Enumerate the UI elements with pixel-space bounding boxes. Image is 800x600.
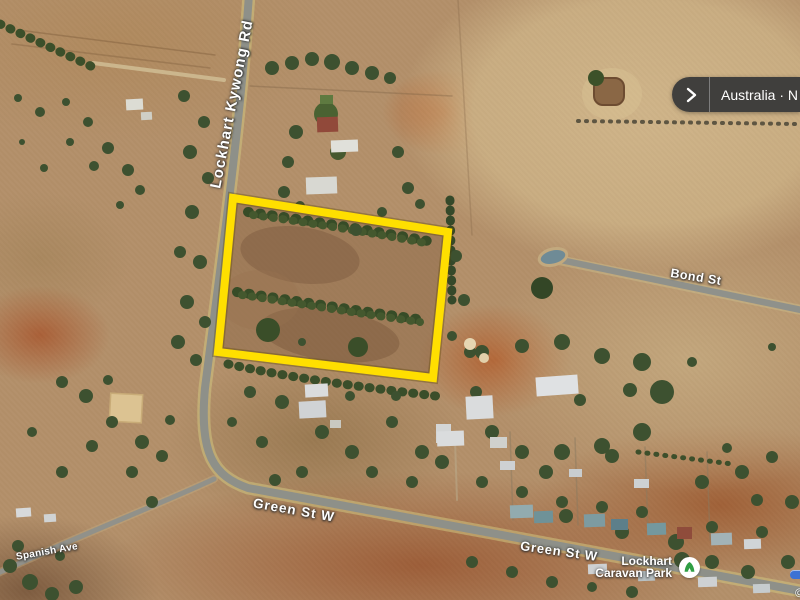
poi-lockhart-caravan-park[interactable]: Lockhart Caravan Park	[560, 556, 700, 579]
poi-label-line2: Caravan Park	[560, 568, 672, 580]
poi-label: Lockhart Caravan Park	[560, 556, 672, 579]
tent-glyph	[681, 559, 698, 576]
breadcrumb-location[interactable]: Australia · N	[710, 87, 798, 103]
dam	[537, 68, 642, 268]
chevron-right-icon	[684, 85, 698, 105]
caravan-park-icon[interactable]	[679, 557, 700, 578]
breadcrumb-bar[interactable]: Australia · N	[672, 77, 800, 112]
attribution-text: ©	[795, 586, 800, 600]
satellite-map-canvas[interactable]: Lockhart Kywong Rd Bond St Green St W Gr…	[0, 0, 800, 600]
map-marker-partial	[790, 570, 800, 579]
expand-breadcrumb-button[interactable]	[672, 77, 709, 112]
